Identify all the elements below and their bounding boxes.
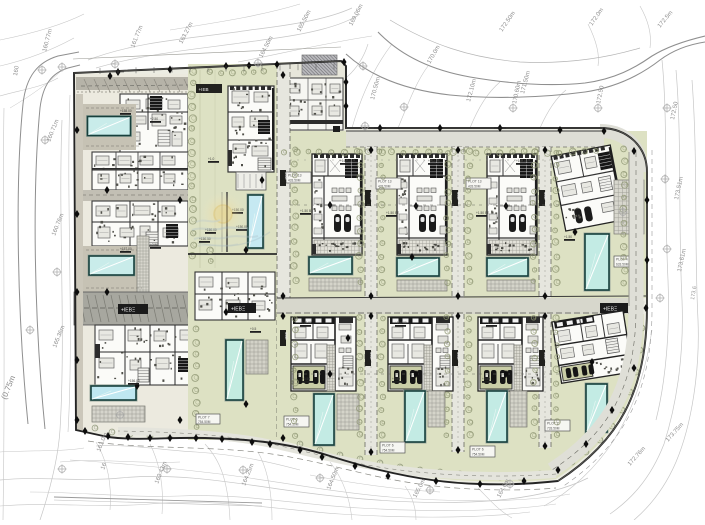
svg-text:IEBE: IEBE <box>284 172 288 180</box>
svg-text:PLOT 7: PLOT 7 <box>198 416 210 420</box>
svg-text:754.50M: 754.50M <box>472 452 485 456</box>
svg-text:+2.50: +2.50 <box>150 243 158 247</box>
svg-text:754.50M: 754.50M <box>382 448 395 452</box>
svg-text:IEBE: IEBE <box>369 192 373 200</box>
svg-text:+1.50 BE: +1.50 BE <box>476 211 489 215</box>
svg-text:IEBE: IEBE <box>456 352 460 360</box>
svg-text:+IEBΞ: +IEBΞ <box>231 307 246 313</box>
svg-text:633.50M: 633.50M <box>616 262 629 266</box>
svg-text:433.50M: 433.50M <box>468 184 481 188</box>
svg-text:+156.00: +156.00 <box>128 379 140 383</box>
svg-text:+160.00: +160.00 <box>486 321 498 325</box>
svg-text:+IEB: +IEB <box>199 87 209 92</box>
svg-text:+0.50: +0.50 <box>392 377 400 381</box>
svg-text:+162.00: +162.00 <box>340 159 352 163</box>
svg-text:+1.50 BE: +1.50 BE <box>386 211 399 215</box>
svg-text:733.50M: 733.50M <box>547 426 560 430</box>
svg-text:PLOT 13: PLOT 13 <box>288 174 302 178</box>
svg-text:+IEBΞ: +IEBΞ <box>121 308 136 314</box>
svg-text:+158.00: +158.00 <box>120 109 132 113</box>
svg-text:PLOT 6: PLOT 6 <box>382 444 394 448</box>
svg-text:IEBE: IEBE <box>543 352 547 360</box>
svg-text:IEBE: IEBE <box>369 352 373 360</box>
svg-text:+0.50: +0.50 <box>302 377 310 381</box>
svg-text:IEBE: IEBE <box>543 192 547 200</box>
svg-text:+1.50: +1.50 <box>564 235 572 239</box>
svg-text:+1.50 BE: +1.50 BE <box>300 209 313 213</box>
svg-text:+157.00: +157.00 <box>120 247 132 251</box>
svg-text:IEBE: IEBE <box>456 192 460 200</box>
svg-text:+0.5: +0.5 <box>250 327 257 331</box>
svg-text:IEBE: IEBE <box>284 332 288 340</box>
svg-text:+160.00: +160.00 <box>300 321 312 325</box>
svg-text:+1.0: +1.0 <box>208 157 215 161</box>
svg-text:+162.00: +162.00 <box>516 159 528 163</box>
svg-text:+2.50: +2.50 <box>150 117 158 121</box>
svg-text:+0.50: +0.50 <box>482 377 490 381</box>
svg-text:PLOT 6: PLOT 6 <box>472 448 484 452</box>
svg-text:433.50M: 433.50M <box>288 178 301 182</box>
svg-text:+162.00: +162.00 <box>428 159 440 163</box>
svg-text:+160.00: +160.00 <box>395 321 407 325</box>
svg-text:754.50M: 754.50M <box>198 420 211 424</box>
svg-text:PLOT 13: PLOT 13 <box>378 180 392 184</box>
